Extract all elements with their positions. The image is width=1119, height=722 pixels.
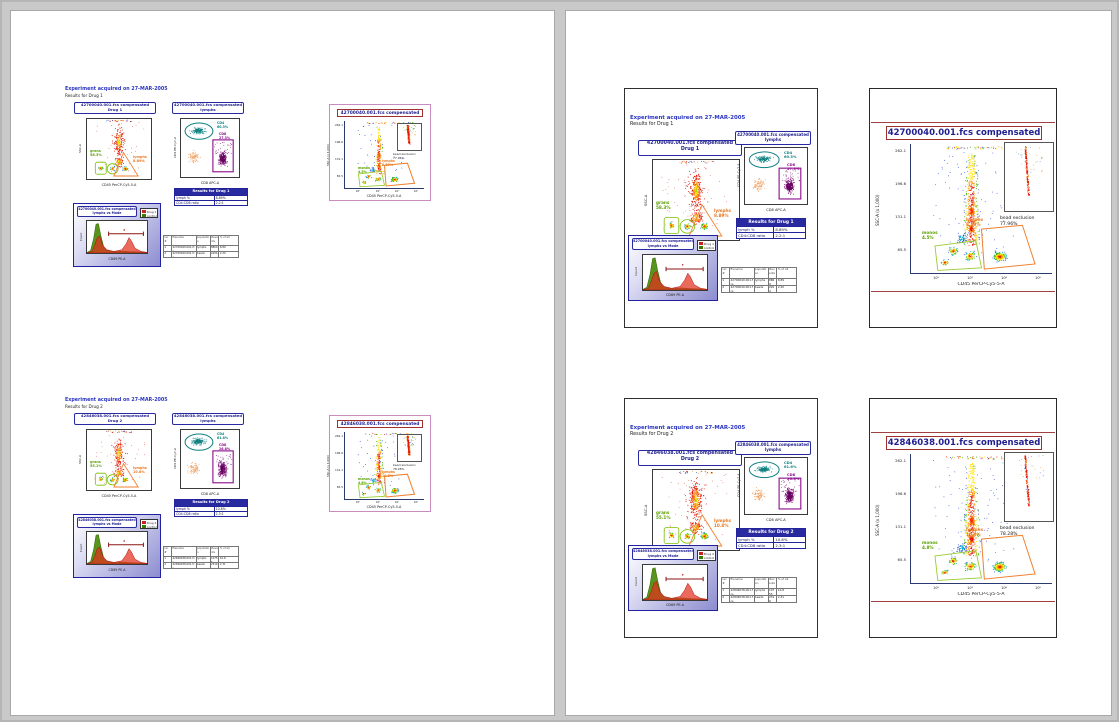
statistics-table: rec # filename population #events % of a… (721, 577, 797, 603)
y-tick-label: 65.5 (886, 557, 906, 562)
divider-line (871, 122, 1055, 123)
x-tick-label: 10⁵ (1031, 276, 1045, 280)
legend-swatch-red (699, 552, 704, 555)
plot-title-line2: lymphs (736, 447, 810, 452)
bead-exclusion-inset (1004, 452, 1054, 522)
stats-cell: 42700040.001.fcs (730, 278, 754, 285)
bead-exclusion-label: bead exclusion 78.28% (393, 464, 415, 472)
results-table-title: Results for Drug 2 (737, 529, 805, 536)
results-row-label: CD4:CD8 ratio (175, 201, 215, 205)
legend-label: control (147, 214, 157, 218)
gate-label-cd4: CD4 60.3% (784, 151, 796, 159)
x-tick-label: 10⁴ (997, 276, 1011, 280)
results-row-label: CD4:CD8 ratio (175, 512, 215, 516)
stats-cell: 42700040.001.fcs (172, 251, 196, 257)
stats-data-row: 2 42700040.001.fcs beads 2204 2.20 (722, 285, 796, 292)
stats-header-cell: % of all (777, 578, 796, 588)
x-tick-label: 10² (353, 501, 363, 504)
stats-header-cell: % of all (777, 268, 796, 278)
y-tick-label: 262.1 (332, 434, 343, 438)
results-table-row: CD4:CD8 ratio 2.3:1 (175, 511, 247, 516)
y-axis-label: Count (79, 535, 83, 561)
stats-cell: lymphs (755, 278, 769, 285)
cd4-cd8-scatter-panel: 42700040.001.fcs compensated lymphs CD4 … (171, 100, 247, 200)
analysis-group: Experiment acquired on 27-MAR-2005 Resul… (65, 398, 501, 660)
legend-label: control (704, 556, 714, 560)
y-tick-label: 65.5 (886, 247, 906, 252)
y-tick-label: 262.1 (886, 458, 906, 463)
y-axis-label: Count (634, 258, 638, 286)
legend-box: Drug 1 control (140, 208, 158, 218)
experiment-acquired-text: Experiment acquired on 27-MAR-2005 (630, 115, 745, 122)
gate-label-lymphs: lymphs 10.8% (133, 467, 147, 475)
stats-header-cell: filename (172, 236, 196, 245)
stats-header-row: rec # filename population #events % of a… (164, 547, 238, 556)
results-row-label: CD4:CD8 ratio (737, 543, 774, 548)
cd4-cd8-scatter-plot (180, 118, 240, 178)
stats-cell: 2310 (211, 562, 220, 568)
large-plot-title: 42846038.001.fcs compensated (337, 420, 423, 428)
large-plot-panel: 42846038.001.fcs compensated 262.1 196.6… (329, 415, 431, 512)
stats-cell: beads (755, 595, 769, 602)
y-tick-label: 131.1 (332, 468, 343, 472)
y-axis-label: CD4 PE-Cy7-A (173, 130, 177, 166)
x-tick-label: 10⁴ (997, 586, 1011, 590)
gate-label-cd8: CD8 26.8% (219, 444, 230, 451)
stats-cell: 2310 (769, 595, 778, 602)
gate-label-lymphs: lymphs 8.89% (382, 160, 395, 167)
gate-label-lymphs: lymphs 10.8% (966, 528, 983, 538)
stats-header-cell: rec # (164, 236, 172, 245)
x-tick-label: 10⁴ (392, 501, 402, 504)
results-table-row: CD4:CD8 ratio 2.2:1 (175, 200, 247, 205)
histogram-overlay-panel: 42700040.001.fcs compensated lymphs vs M… (628, 235, 718, 301)
results-for-text: Results for Drug 2 (65, 404, 168, 409)
analysis-group: Experiment acquired on 27-MAR-2005 Resul… (624, 398, 1060, 660)
stats-header-cell: population (197, 236, 211, 245)
stats-cell: beads (197, 562, 211, 568)
legend-box: Drug 1 control (697, 240, 716, 251)
gate-label-cd8: CD8 27.3% (219, 133, 230, 140)
plot-title-line2: Drug 2 (75, 419, 155, 424)
x-axis-label: CD8 APC-A (180, 492, 240, 496)
stats-cell: 10755 (769, 588, 778, 595)
x-tick-label: 10³ (373, 190, 383, 193)
y-tick-label: 131.1 (332, 157, 343, 161)
x-tick-label: 10⁵ (1031, 586, 1045, 590)
stats-header-cell: rec # (722, 268, 730, 278)
legend-box: Drug 2 control (697, 550, 716, 561)
large-plot-title: 42700040.001.fcs compensated (886, 126, 1042, 140)
stats-cell: 10.8 (777, 588, 796, 595)
experiment-header: Experiment acquired on 27-MAR-2005 Resul… (630, 425, 745, 438)
plot-title-box: 42846038.001.fcs compensated Drug 2 (638, 450, 742, 466)
results-row-value: 2.2:1 (215, 201, 247, 205)
y-axis-label: SSC-A (x 1,000) (326, 444, 330, 489)
histogram-title-box: 42700040.001.fcs compensated lymphs vs M… (77, 206, 137, 217)
y-axis-label: Count (79, 224, 83, 250)
y-tick-label: 131.1 (886, 214, 906, 219)
histogram-title-box: 42700040.001.fcs compensated lymphs vs M… (632, 238, 694, 250)
stats-cell: 8869 (769, 278, 778, 285)
y-axis-label: SSC-A (x 1,000) (875, 484, 880, 556)
plot-title-line2: lymphs (173, 419, 243, 424)
x-axis-label: CD8 APC-A (744, 208, 808, 212)
stats-cell: 2204 (211, 251, 220, 257)
legend-swatch-green (142, 525, 147, 528)
bead-exclusion-inset (397, 123, 422, 151)
results-table-row: CD4:CD8 ratio 2.3:1 (737, 542, 805, 548)
stats-data-row: 1 42846038.001.fcs lymphs 10755 10.8 (722, 588, 796, 595)
legend-swatch-green (142, 214, 147, 217)
results-table: Results for Drug 2 lymph % 10.8% CD4:CD8… (736, 528, 806, 549)
legend-swatch-green (699, 556, 704, 559)
histogram-plot (86, 220, 148, 254)
stats-header-cell: #events (769, 578, 778, 588)
stats-cell: 2.20 (219, 251, 238, 257)
large-plot-title: 42846038.001.fcs compensated (886, 436, 1042, 450)
x-axis-label: CD45 PerCP-Cy5-5-A (910, 592, 1052, 597)
gate-label-cd4: CD4 61.6% (217, 433, 228, 440)
cd4-cd8-scatter-plot (744, 457, 808, 515)
results-row-value: 2.2:1 (774, 233, 805, 238)
stats-cell: 42700040.001.fcs (730, 285, 754, 292)
y-tick-label: 65.5 (332, 174, 343, 178)
statistics-table: rec # filename population #events % of a… (163, 546, 239, 569)
histogram-title-line2: lymphs vs Mode (78, 211, 136, 215)
plot-title-line2: Drug 1 (75, 108, 155, 113)
plot-title-box: 42846038.001.fcs compensated lymphs (735, 441, 811, 455)
y-tick-label: 131.1 (886, 524, 906, 529)
stats-cell: 42846038.001.fcs (172, 562, 196, 568)
legend-label: control (704, 246, 714, 250)
histogram-plot (642, 254, 708, 291)
y-axis-label: CD4 PE-Cy7-A (737, 467, 741, 503)
legend-swatch-red (699, 242, 704, 245)
x-axis-label: CD45 PerCP-Cy5-5-A (910, 282, 1052, 287)
stats-header-cell: #events (769, 268, 778, 278)
stats-header-cell: population (755, 268, 769, 278)
x-axis-label: CD69 PE-A (86, 257, 148, 261)
gate-label-lymphs: lymphs 8.89% (133, 156, 147, 164)
gate-label-grans: grans 55.1% (90, 461, 102, 469)
experiment-header: Experiment acquired on 27-MAR-2005 Resul… (65, 87, 168, 98)
x-tick-label: 10⁵ (411, 501, 421, 504)
plot-title-box: 42700040.001.fcs compensated Drug 1 (74, 102, 156, 114)
stats-cell: 2 (164, 251, 172, 257)
large-plot-title: 42700040.001.fcs compensated (337, 109, 423, 117)
divider-line (871, 432, 1055, 433)
x-axis-label: CD45 PerCP-Cy5-5-A (86, 183, 152, 187)
gate-label-monos: monos 4.5% (358, 167, 370, 174)
plot-title-line2: lymphs (173, 108, 243, 113)
legend-item: control (142, 214, 157, 218)
gate-label-cd8: CD8 26.8% (787, 473, 799, 481)
results-for-text: Results for Drug 2 (630, 432, 745, 438)
histogram-title-box: 42846038.001.fcs compensated lymphs vs M… (77, 517, 137, 528)
gate-label-monos: monos 4.5% (922, 231, 938, 241)
legend-item: control (699, 246, 715, 250)
results-table: Results for Drug 1 lymph % 8.89% CD4:CD8… (174, 188, 248, 206)
results-row-value: 2.3:1 (215, 512, 247, 516)
results-row-label: CD4:CD8 ratio (737, 233, 774, 238)
stats-cell: lymphs (755, 588, 769, 595)
results-row-value: 2.3:1 (774, 543, 805, 548)
statistics-table: rec # filename population #events % of a… (721, 267, 797, 293)
y-axis-label: SSC-A (643, 177, 648, 223)
stats-cell: 42846038.001.fcs (730, 595, 754, 602)
results-for-text: Results for Drug 1 (65, 93, 168, 98)
stats-cell: 42846038.001.fcs (730, 588, 754, 595)
y-tick-label: 196.6 (886, 491, 906, 496)
stats-cell: beads (197, 251, 211, 257)
gate-label-cd4: CD4 61.6% (784, 461, 796, 469)
histogram-title-line2: lymphs vs Mode (633, 554, 693, 559)
stats-cell: 2 (722, 595, 730, 602)
experiment-header: Experiment acquired on 27-MAR-2005 Resul… (65, 398, 168, 409)
page-1[interactable]: Experiment acquired on 27-MAR-2005 Resul… (10, 10, 555, 716)
x-axis-label: CD45 PerCP-Cy5-5-A (86, 494, 152, 498)
x-axis-label: CD69 PE-A (86, 568, 148, 572)
gate-label-lymphs: lymphs 10.8% (382, 471, 395, 478)
stats-cell: beads (755, 285, 769, 292)
stats-header-cell: population (197, 547, 211, 556)
cd45-ssc-density-panel: 42700040.001.fcs compensated Drug 1 SSC-… (73, 100, 159, 200)
plot-title-box: 42846038.001.fcs compensated lymphs (172, 413, 244, 425)
x-tick-label: 10⁴ (392, 190, 402, 193)
x-axis-label: CD45 PerCP-Cy5-5-A (344, 194, 424, 198)
gate-label-grans: grans 58.3% (656, 201, 671, 211)
legend-item: control (699, 556, 715, 560)
stats-cell: 2.31 (777, 595, 796, 602)
cd4-cd8-scatter-panel: 42846038.001.fcs compensated lymphs CD4 … (734, 439, 816, 537)
stats-cell: 2.20 (777, 285, 796, 292)
stats-cell: 2 (722, 285, 730, 292)
x-axis-label: CD69 PE-A (642, 293, 708, 297)
bead-exclusion-inset (1004, 142, 1054, 212)
gate-label-grans: grans 58.3% (90, 150, 102, 158)
cd4-cd8-scatter-plot (744, 147, 808, 205)
histogram-overlay-panel: 42846038.001.fcs compensated lymphs vs M… (73, 514, 161, 578)
histogram-title-line2: lymphs vs Mode (633, 244, 693, 249)
plot-title-box: 42700040.001.fcs compensated Drug 1 (638, 140, 742, 156)
histogram-overlay-panel: 42846038.001.fcs compensated lymphs vs M… (628, 545, 718, 611)
large-plot-panel: 42700040.001.fcs compensated 262.1 196.6… (869, 88, 1057, 328)
stats-data-row: 1 42700040.001.fcs lymphs 8869 8.89 (722, 278, 796, 285)
stats-header-row: rec # filename population #events % of a… (164, 236, 238, 245)
y-tick-label: 65.5 (332, 485, 343, 489)
y-axis-label: CD4 PE-Cy7-A (737, 157, 741, 193)
gate-label-monos: monos 4.8% (922, 541, 938, 551)
stats-header-cell: filename (172, 547, 196, 556)
y-tick-label: 262.1 (332, 123, 343, 127)
cd4-cd8-scatter-panel: 42846038.001.fcs compensated lymphs CD4 … (171, 411, 247, 511)
divider-line (871, 291, 1055, 292)
stats-header-cell: % of all (219, 547, 238, 556)
stats-header-cell: #events (211, 236, 220, 245)
histogram-overlay-panel: 42700040.001.fcs compensated lymphs vs M… (73, 203, 161, 267)
stats-data-row: 2 42846038.001.fcs beads 2310 2.31 (164, 562, 238, 568)
gate-label-cd8: CD8 27.3% (787, 163, 799, 171)
legend-label: control (147, 525, 157, 529)
legend-item: control (142, 525, 157, 529)
gate-label-lymphs: lymphs 8.89% (714, 209, 731, 219)
stats-cell: 2 (164, 562, 172, 568)
page-2[interactable]: Experiment acquired on 27-MAR-2005 Resul… (565, 10, 1112, 716)
y-tick-label: 196.6 (332, 451, 343, 455)
legend-swatch-red (142, 521, 147, 524)
stats-header-cell: #events (211, 547, 220, 556)
results-table: Results for Drug 2 lymph % 10.8% CD4:CD8… (174, 499, 248, 517)
bead-exclusion-inset (397, 434, 422, 462)
experiment-acquired-text: Experiment acquired on 27-MAR-2005 (630, 425, 745, 432)
x-tick-label: 10⁵ (411, 190, 421, 193)
plot-title-box: 42700040.001.fcs compensated lymphs (172, 102, 244, 114)
legend-box: Drug 2 control (140, 519, 158, 529)
gate-label-grans: grans 55.1% (656, 511, 671, 521)
bead-exclusion-label: bead exclusion 77.96% (393, 153, 415, 161)
large-plot-panel: 42700040.001.fcs compensated 262.1 196.6… (329, 104, 431, 201)
plot-title-line2: Drug 1 (639, 147, 741, 153)
cd45-ssc-density-panel: 42846038.001.fcs compensated Drug 2 SSC-… (73, 411, 159, 511)
stats-cell: 8.89 (777, 278, 796, 285)
stats-data-row: 2 42700040.001.fcs beads 2204 2.20 (164, 251, 238, 257)
stats-cell: 2.31 (219, 562, 238, 568)
experiment-header: Experiment acquired on 27-MAR-2005 Resul… (630, 115, 745, 128)
results-table: Results for Drug 1 lymph % 8.89% CD4:CD8… (736, 218, 806, 239)
legend-swatch-red (142, 210, 147, 213)
analysis-group: Experiment acquired on 27-MAR-2005 Resul… (65, 87, 501, 349)
y-axis-label: SSC-A (643, 487, 648, 533)
results-table-title: Results for Drug 1 (737, 219, 805, 226)
statistics-table: rec # filename population #events % of a… (163, 235, 239, 258)
document-canvas: Experiment acquired on 27-MAR-2005 Resul… (0, 0, 1119, 722)
y-tick-label: 262.1 (886, 148, 906, 153)
x-tick-label: 10³ (963, 586, 977, 590)
large-plot-panel: 42846038.001.fcs compensated 262.1 196.6… (869, 398, 1057, 638)
stats-header-cell: rec # (722, 578, 730, 588)
y-tick-label: 196.6 (332, 140, 343, 144)
stats-cell: 2204 (769, 285, 778, 292)
x-tick-label: 10² (353, 190, 363, 193)
x-tick-label: 10² (929, 586, 943, 590)
y-axis-label: SSC-A (x 1,000) (875, 174, 880, 246)
y-axis-label: Count (634, 568, 638, 596)
stats-header-cell: filename (730, 268, 754, 278)
stats-header-cell: population (755, 578, 769, 588)
x-tick-label: 10³ (963, 276, 977, 280)
stats-cell: 1 (722, 278, 730, 285)
gate-label-lymphs: lymphs 8.89% (966, 218, 983, 228)
x-tick-label: 10³ (373, 501, 383, 504)
stats-data-row: 2 42846038.001.fcs beads 2310 2.31 (722, 595, 796, 602)
results-table-row: CD4:CD8 ratio 2.2:1 (737, 232, 805, 238)
legend-swatch-green (699, 246, 704, 249)
histogram-title-line2: lymphs vs Mode (78, 522, 136, 526)
stats-header-row: rec # filename population #events % of a… (722, 268, 796, 278)
stats-header-row: rec # filename population #events % of a… (722, 578, 796, 588)
x-axis-label: CD8 APC-A (180, 181, 240, 185)
plot-title-line2: lymphs (736, 137, 810, 142)
y-axis-label: SSC-A (x 1,000) (326, 133, 330, 178)
histogram-title-box: 42846038.001.fcs compensated lymphs vs M… (632, 548, 694, 560)
plot-title-box: 42846038.001.fcs compensated Drug 2 (74, 413, 156, 425)
analysis-group: Experiment acquired on 27-MAR-2005 Resul… (624, 88, 1060, 350)
stats-header-cell: % of all (219, 236, 238, 245)
histogram-plot (642, 564, 708, 601)
histogram-plot (86, 531, 148, 565)
bead-exclusion-label: bead exclusion 78.28% (1000, 526, 1034, 537)
stats-header-cell: filename (730, 578, 754, 588)
results-for-text: Results for Drug 1 (630, 122, 745, 128)
stats-cell: 1 (722, 588, 730, 595)
plot-title-box: 42700040.001.fcs compensated lymphs (735, 131, 811, 145)
y-axis-label: SSC-A (78, 441, 82, 479)
divider-line (871, 601, 1055, 602)
x-axis-label: CD45 PerCP-Cy5-5-A (344, 505, 424, 509)
cd4-cd8-scatter-plot (180, 429, 240, 489)
y-tick-label: 196.6 (886, 181, 906, 186)
x-axis-label: CD8 APC-A (744, 518, 808, 522)
cd4-cd8-scatter-panel: 42700040.001.fcs compensated lymphs CD4 … (734, 129, 816, 227)
x-axis-label: CD69 PE-A (642, 603, 708, 607)
y-axis-label: CD4 PE-Cy7-A (173, 441, 177, 477)
gate-label-monos: monos 4.8% (358, 478, 370, 485)
bead-exclusion-label: bead exclusion 77.96% (1000, 216, 1034, 227)
x-tick-label: 10² (929, 276, 943, 280)
gate-label-lymphs: lymphs 10.8% (714, 519, 731, 529)
plot-title-line2: Drug 2 (639, 457, 741, 463)
gate-label-cd4: CD4 60.3% (217, 122, 228, 129)
y-axis-label: SSC-A (78, 130, 82, 168)
stats-header-cell: rec # (164, 547, 172, 556)
